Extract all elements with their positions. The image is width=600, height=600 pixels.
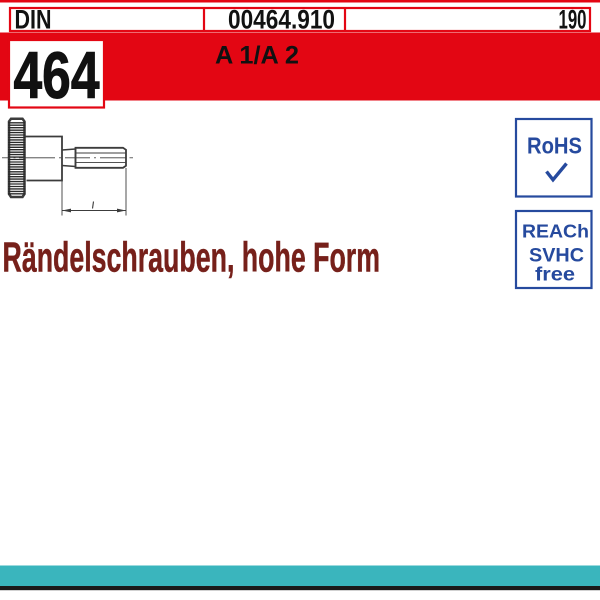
svg-text:REACh: REACh [522,221,589,242]
svg-text:RoHS: RoHS [527,133,582,159]
svg-text:DIN: DIN [15,5,52,35]
svg-text:190: 190 [559,5,587,35]
svg-text:464: 464 [14,39,100,112]
svg-text:Rändelschrauben, hohe Form: Rändelschrauben, hohe Form [3,235,381,281]
svg-text:free: free [535,264,575,286]
svg-text:00464.910: 00464.910 [228,5,335,35]
svg-text:A 1/A 2: A 1/A 2 [215,42,299,70]
